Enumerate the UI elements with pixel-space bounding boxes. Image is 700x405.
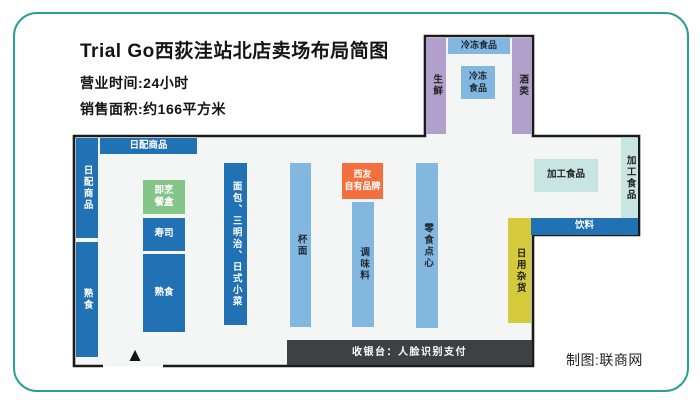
credit-text: 制图:联商网: [566, 350, 643, 370]
section-frozen-top-bar: 冷冻食品: [448, 38, 510, 54]
section-ready-meal: 即烹 餐盒: [143, 180, 185, 214]
section-processed-island: 加工食品: [534, 159, 598, 192]
section-dairy-wall: 日配商品: [76, 138, 98, 238]
section-frozen-island: 冷冻 食品: [461, 66, 495, 99]
section-drinks: 饮料: [531, 218, 638, 235]
section-cup-noodles: 杯面: [290, 163, 311, 327]
checkout-counter: 收银台：人脸识别支付: [287, 340, 532, 365]
section-alcohol: 酒类: [512, 38, 532, 134]
entrance-triangle-icon: ▲: [122, 346, 148, 366]
section-daily-goods: 日用杂货: [508, 218, 531, 323]
section-sushi: 寿司: [143, 218, 185, 251]
section-seasoning: 调味料: [352, 202, 374, 327]
section-processed-wall: 加工食品: [621, 138, 638, 218]
section-bread-sandwich: 面包、三明治、日式小菜: [224, 163, 247, 325]
section-deli-wall: 熟食: [76, 242, 98, 357]
section-snacks: 零食点心: [416, 163, 438, 328]
store-layout-card: Trial Go西荻洼站北店卖场布局简图 营业时间:24小时 销售面积:约166…: [0, 0, 700, 405]
section-dairy-top-bar: 日配商品: [100, 138, 197, 154]
section-deli-center: 熟食: [143, 254, 185, 332]
section-seiyu-brand: 西友 自有品牌: [342, 163, 383, 199]
section-fresh: 生鲜: [426, 38, 446, 134]
